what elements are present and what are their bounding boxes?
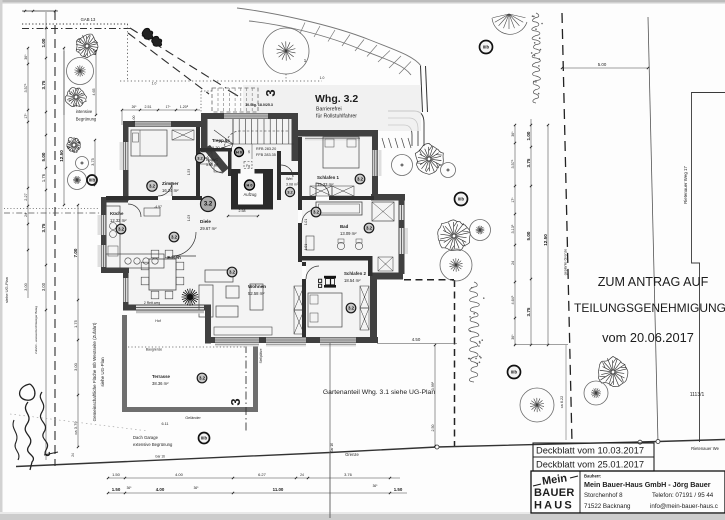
svg-text:12.50: 12.50	[59, 150, 64, 162]
svg-text:3.99⁵: 3.99⁵	[431, 381, 435, 390]
svg-text:1.0: 1.0	[152, 82, 157, 86]
svg-text:3.00: 3.00	[41, 282, 46, 291]
svg-text:1.01: 1.01	[304, 219, 308, 225]
svg-text:3.2: 3.2	[149, 184, 156, 189]
svg-text:FFB 283.35: FFB 283.35	[256, 153, 276, 157]
svg-text:10.Stg. 18.0/25.3: 10.Stg. 18.0/25.3	[245, 103, 273, 107]
svg-text:1.0: 1.0	[320, 76, 325, 80]
svg-text:3.2: 3.2	[204, 202, 213, 208]
svg-text:24: 24	[511, 261, 515, 265]
svg-text:5.00: 5.00	[41, 152, 46, 161]
svg-text:3.2: 3.2	[199, 376, 206, 381]
svg-text:für Rollstuhlfahrer: für Rollstuhlfahrer	[316, 114, 357, 120]
svg-text:5.00: 5.00	[526, 231, 531, 240]
svg-text:3.75: 3.75	[41, 80, 46, 89]
svg-text:2.58: 2.58	[239, 209, 246, 213]
svg-text:ca 6.22: ca 6.22	[560, 396, 564, 408]
svg-text:36⁵: 36⁵	[511, 131, 515, 137]
svg-text:Rietenauer We: Rietenauer We	[691, 446, 720, 451]
svg-text:3.2: 3.2	[287, 190, 293, 195]
svg-text:GAB 13: GAB 13	[81, 17, 96, 22]
svg-text:24: 24	[24, 213, 28, 217]
svg-text:Schlafen 1: Schlafen 1	[317, 175, 340, 180]
svg-text:4.50: 4.50	[412, 337, 421, 342]
svg-text:Mein Bauer-Haus GmbH - Jörg Ba: Mein Bauer-Haus GmbH - Jörg Bauer	[584, 480, 711, 489]
svg-text:info@mein-bauer-haus.c: info@mein-bauer-haus.c	[650, 503, 718, 510]
svg-text:11.00: 11.00	[273, 487, 284, 492]
svg-text:3.75: 3.75	[41, 223, 46, 232]
svg-text:17⁵: 17⁵	[24, 113, 28, 119]
svg-text:12.50: 12.50	[543, 234, 548, 246]
svg-text:36⁵: 36⁵	[511, 334, 515, 340]
svg-text:71522 Backnang: 71522 Backnang	[584, 503, 631, 510]
svg-text:Telefon: 07191 / 95 44: Telefon: 07191 / 95 44	[652, 492, 714, 499]
svg-text:6.11: 6.11	[161, 422, 168, 426]
svg-text:13.09 m²: 13.09 m²	[340, 231, 357, 236]
svg-text:IIIb: IIIb	[89, 177, 95, 182]
svg-text:Aufzug: Aufzug	[243, 192, 257, 197]
svg-text:-4.97: -4.97	[154, 205, 162, 209]
svg-text:IIIb: IIIb	[458, 196, 464, 201]
svg-text:3.13⁵: 3.13⁵	[511, 224, 515, 233]
svg-text:3.2: 3.2	[197, 156, 203, 161]
svg-text:1.50: 1.50	[112, 472, 121, 477]
svg-text:24: 24	[71, 453, 75, 457]
svg-text:Gemeinschaftliche Fläche IIIb: Gemeinschaftliche Fläche IIIb Westseite …	[92, 322, 97, 421]
svg-text:Du/WC: Du/WC	[206, 158, 218, 162]
svg-text:Gar 16: Gar 16	[155, 455, 165, 459]
svg-text:29.67 m²: 29.67 m²	[200, 226, 217, 231]
svg-text:38.36 m²: 38.36 m²	[152, 381, 169, 386]
svg-text:4.65: 4.65	[92, 89, 96, 96]
svg-text:Dach Garage: Dach Garage	[133, 435, 159, 440]
svg-text:BAUER: BAUER	[534, 487, 575, 499]
svg-text:3.75: 3.75	[526, 307, 531, 316]
svg-text:Grenze: Grenze	[345, 452, 359, 457]
svg-text:Deckblatt vom 10.03.2017: Deckblatt vom 10.03.2017	[536, 446, 644, 456]
svg-text:Rietenauer Weg 17: Rietenauer Weg 17	[683, 166, 688, 204]
svg-text:3.2: 3.2	[348, 306, 355, 311]
svg-text:Storchenhof 8: Storchenhof 8	[584, 492, 623, 499]
svg-text:4.00: 4.00	[156, 487, 165, 492]
svg-text:Wohnen: Wohnen	[248, 284, 266, 289]
svg-text:3.75: 3.75	[526, 158, 531, 167]
svg-text:siehe UG-Plan: siehe UG-Plan	[4, 277, 9, 303]
svg-text:2.50: 2.50	[431, 425, 435, 432]
svg-text:16.24 m²: 16.24 m²	[162, 188, 179, 193]
svg-text:Schlafen 2: Schlafen 2	[344, 271, 367, 276]
svg-text:IIIb: IIIb	[511, 369, 517, 374]
svg-text:4.00: 4.00	[175, 472, 184, 477]
svg-text:6.27: 6.27	[258, 472, 267, 477]
svg-text:TEILUNGSGENEHMIGUNG: TEILUNGSGENEHMIGUNG	[574, 301, 725, 315]
svg-text:3: 3	[263, 89, 278, 96]
svg-text:3.57⁵: 3.57⁵	[24, 83, 28, 92]
svg-text:vom 20.06.2017: vom 20.06.2017	[602, 330, 694, 345]
svg-text:HAUS: HAUS	[534, 500, 574, 512]
svg-text:1113/1: 1113/1	[690, 392, 705, 398]
svg-text:ca 3.79: ca 3.79	[73, 421, 78, 435]
svg-text:Zimmer: Zimmer	[162, 181, 179, 186]
svg-text:1.76: 1.76	[41, 173, 46, 182]
svg-text:1.20⁵: 1.20⁵	[180, 105, 189, 109]
svg-text:Deckblatt vom 25.01.2017: Deckblatt vom 25.01.2017	[536, 460, 644, 470]
svg-text:7.00: 7.00	[73, 248, 78, 257]
svg-text:1.03: 1.03	[187, 215, 191, 221]
svg-text:1.00: 1.00	[526, 131, 531, 140]
svg-text:extensive Begrünung: extensive Begrünung	[133, 442, 173, 447]
svg-text:Stellplätze: Stellplätze	[259, 348, 263, 363]
svg-text:Terrasse: Terrasse	[152, 374, 171, 379]
svg-text:ZUM ANTRAG AUF: ZUM ANTRAG AUF	[598, 275, 709, 289]
svg-text:RFB 283.20: RFB 283.20	[256, 147, 276, 151]
svg-text:17⁵: 17⁵	[511, 197, 515, 203]
svg-text:Fg: Fg	[246, 164, 250, 168]
svg-text:17⁰: 17⁰	[166, 105, 172, 109]
svg-text:1.00: 1.00	[41, 38, 46, 47]
svg-text:1.50: 1.50	[112, 487, 121, 492]
svg-text:3.00: 3.00	[24, 283, 28, 290]
svg-text:3.2: 3.2	[313, 210, 320, 215]
svg-text:1.53: 1.53	[187, 169, 191, 175]
svg-text:4.64⁵: 4.64⁵	[511, 295, 515, 304]
svg-text:5.00: 5.00	[598, 62, 607, 67]
svg-text:3.75: 3.75	[91, 158, 95, 165]
svg-text:IIIb: IIIb	[483, 44, 489, 49]
svg-text:Whg. 3.2: Whg. 3.2	[315, 93, 358, 105]
svg-text:3.08 m²: 3.08 m²	[286, 183, 299, 187]
svg-text:1.00: 1.00	[132, 116, 136, 123]
svg-text:2 Rett.weg: 2 Rett.weg	[144, 301, 160, 305]
svg-text:siehe UG-Plan: siehe UG-Plan	[100, 357, 105, 387]
svg-text:Barrierefrei: Barrierefrei	[316, 107, 342, 113]
svg-text:Essen: Essen	[167, 255, 181, 260]
svg-text:3.57⁵: 3.57⁵	[511, 159, 515, 168]
svg-text:26⁵: 26⁵	[132, 105, 138, 109]
svg-text:Gar 16: Gar 16	[330, 443, 334, 453]
svg-text:3.00: 3.00	[73, 362, 78, 371]
svg-text:geplante Grenze: geplante Grenze	[564, 249, 568, 276]
svg-text:1.75: 1.75	[73, 319, 78, 328]
svg-text:12.32 m²: 12.32 m²	[110, 218, 127, 223]
svg-text:9.30 m²: 9.30 m²	[212, 145, 226, 150]
svg-text:18.54 m²: 18.54 m²	[344, 278, 361, 283]
svg-text:1.50: 1.50	[394, 487, 403, 492]
svg-text:Wel: Wel	[286, 177, 293, 181]
svg-text:3.2: 3.2	[171, 235, 178, 240]
svg-text:3.2: 3.2	[229, 270, 236, 275]
svg-text:Zufahrt - wasserdurchlässiger: Zufahrt - wasserdurchlässiger Belag	[34, 306, 38, 354]
svg-text:2.27: 2.27	[24, 193, 28, 200]
svg-text:36⁵: 36⁵	[194, 486, 200, 490]
svg-text:Küche: Küche	[110, 211, 124, 216]
svg-text:36⁵: 36⁵	[373, 484, 379, 488]
svg-text:Baugrenze: Baugrenze	[146, 348, 163, 352]
svg-text:Geländer: Geländer	[185, 416, 201, 420]
svg-text:18: 18	[247, 150, 251, 154]
svg-text:Bad: Bad	[340, 224, 349, 229]
svg-text:3.2: 3.2	[118, 227, 125, 232]
svg-text:5.08 m²: 5.08 m²	[206, 163, 219, 167]
svg-text:Diele: Diele	[200, 219, 211, 224]
svg-text:Hof: Hof	[155, 319, 161, 323]
svg-text:3.76: 3.76	[344, 472, 353, 477]
svg-text:36⁵: 36⁵	[24, 54, 28, 60]
svg-text:Begrünung: Begrünung	[76, 117, 97, 122]
svg-text:14.33 m²: 14.33 m²	[317, 182, 334, 187]
svg-text:2.51: 2.51	[145, 105, 152, 109]
svg-text:36⁵: 36⁵	[127, 486, 133, 490]
svg-text:3.2: 3.2	[357, 177, 364, 182]
svg-text:Bauherr:: Bauherr:	[584, 474, 601, 479]
svg-text:3: 3	[228, 398, 243, 405]
svg-text:1.01: 1.01	[304, 244, 308, 250]
svg-text:24: 24	[300, 473, 304, 477]
svg-text:H 0: H 0	[236, 151, 242, 155]
svg-text:Trepp.hs: Trepp.hs	[212, 138, 231, 143]
svg-text:intensive: intensive	[76, 109, 93, 114]
svg-text:52.58 m²: 52.58 m²	[248, 291, 265, 296]
svg-text:IIIb: IIIb	[201, 435, 207, 440]
svg-text:H 0: H 0	[247, 184, 253, 188]
svg-text:3.2: 3.2	[366, 226, 373, 231]
svg-text:Gartenanteil Whg. 3.1 siehe UG: Gartenanteil Whg. 3.1 siehe UG-Plan	[323, 389, 435, 396]
